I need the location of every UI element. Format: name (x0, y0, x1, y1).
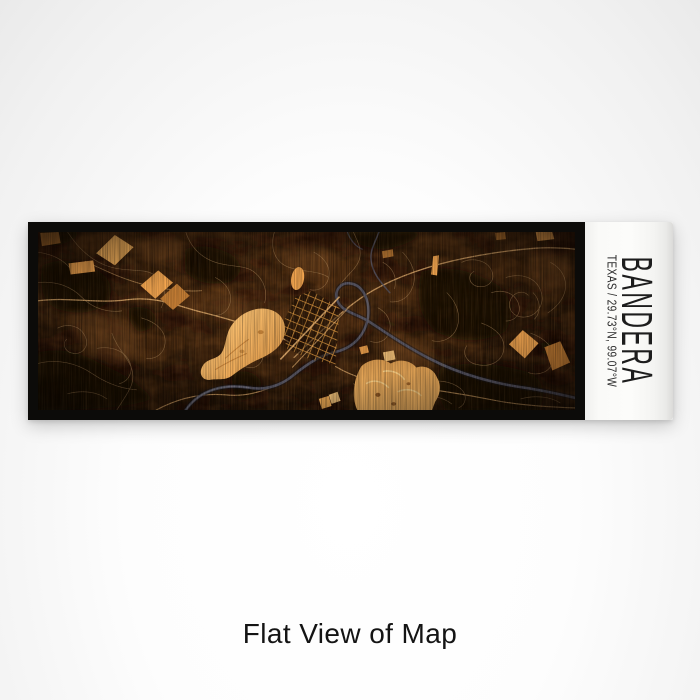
vignette (38, 232, 575, 410)
map-frame (28, 222, 585, 420)
bandera-map-art (38, 232, 575, 410)
label-panel: TEXAS / 29.73°N, 99.07°W BANDERA (585, 222, 673, 420)
map-print: TEXAS / 29.73°N, 99.07°W BANDERA (28, 222, 673, 420)
caption: Flat View of Map (0, 618, 700, 650)
label-title: BANDERA (611, 257, 661, 386)
